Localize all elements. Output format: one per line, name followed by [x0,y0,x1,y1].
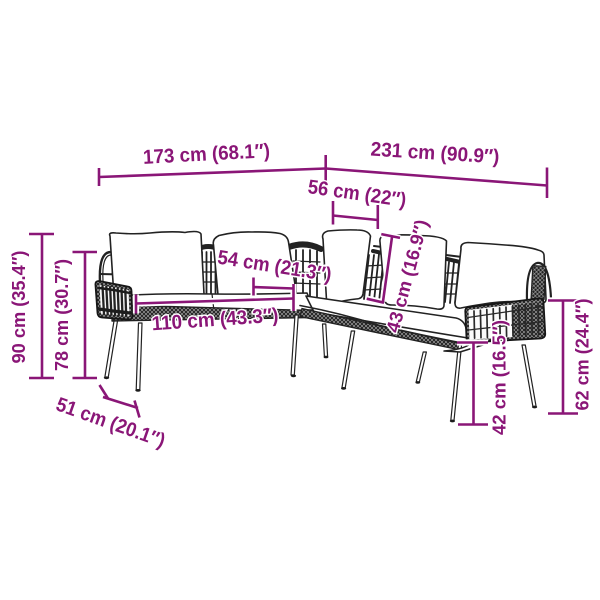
svg-text:42 cm (16.5″): 42 cm (16.5″) [489,320,510,435]
svg-text:78 cm (30.7″): 78 cm (30.7″) [51,259,72,371]
svg-text:90 cm (35.4″): 90 cm (35.4″) [8,251,29,364]
svg-text:62 cm (24.4″): 62 cm (24.4″) [572,299,593,411]
